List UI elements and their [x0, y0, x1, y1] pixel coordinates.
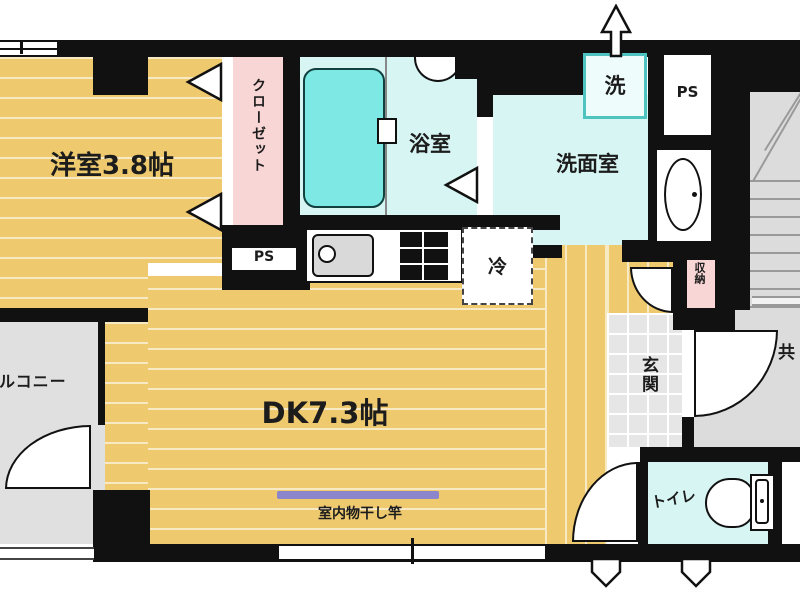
balcony-label: バルコニー [0, 368, 67, 392]
washer-label: 洗 [583, 70, 647, 100]
toilet-tank-dot [760, 499, 764, 503]
bathroom-door-triangle-icon [443, 166, 479, 204]
wall-toilet-left-jamb [638, 462, 648, 544]
wall-pillar-bottom [93, 490, 150, 544]
wall-washroom-topleft [480, 40, 583, 95]
stove-grid-line [400, 247, 448, 249]
wall-entry-bottom-jamb [682, 417, 694, 447]
bathtub [303, 68, 385, 208]
staircase-treads [750, 180, 800, 310]
wall-balcony-top [0, 308, 148, 322]
wall-pillar-top [93, 57, 148, 95]
wall-balcony-edge [98, 322, 105, 425]
wall-storage-bottom [673, 308, 735, 330]
stair-landing-divider [752, 296, 800, 306]
closet-label: クローゼット [248, 78, 268, 174]
common-corridor-label: 共 [778, 338, 795, 363]
ps-left-label: PS [232, 249, 296, 265]
vanity-faucet-dot [692, 192, 697, 197]
washroom-label: 洗面室 [510, 148, 665, 178]
wall-storage-top [622, 240, 750, 262]
window-bottom-tick [411, 538, 414, 564]
wall-bath-corner [455, 57, 477, 79]
closet-door-triangle-icon [185, 192, 223, 232]
stove-icon [400, 232, 448, 280]
western-room-label: 洋室3.8帖 [22, 145, 202, 182]
ps-right-label: PS [662, 83, 713, 101]
window-mullion [0, 48, 57, 50]
entrance-label: 玄関 [636, 356, 661, 394]
toilet-tank-icon [750, 474, 775, 531]
floor-plan: 洋室3.8帖 クローゼット PS 浴室 洗面室 洗 PS 冷 DK7.3帖 室内… [0, 0, 800, 600]
toilet-bowl-icon [705, 478, 755, 528]
storage-label: 収納 [691, 262, 707, 284]
vent-pentagon-icon [590, 558, 622, 588]
vent-arrow-up-icon [598, 4, 634, 58]
sink-faucet-icon [318, 245, 336, 263]
laundry-pole-label: 室内物干し竿 [280, 503, 440, 523]
sliding-opening-western-dk [148, 263, 222, 276]
window-tick [20, 42, 23, 54]
wall-closet-right [283, 40, 300, 230]
window-top-left [0, 40, 57, 57]
closet-track [222, 57, 233, 225]
balcony-railing [0, 547, 94, 560]
laundry-pole-bar [277, 491, 439, 499]
stove-grid-line [422, 232, 424, 280]
fridge-label: 冷 [462, 252, 533, 279]
dk-label: DK7.3帖 [240, 390, 410, 432]
stove-grid-line [400, 263, 448, 265]
vent-pentagon-icon [680, 558, 712, 588]
bathroom-label: 浴室 [380, 128, 480, 158]
entrance-doorway [682, 330, 694, 417]
closet-door-triangle-icon [185, 62, 223, 102]
